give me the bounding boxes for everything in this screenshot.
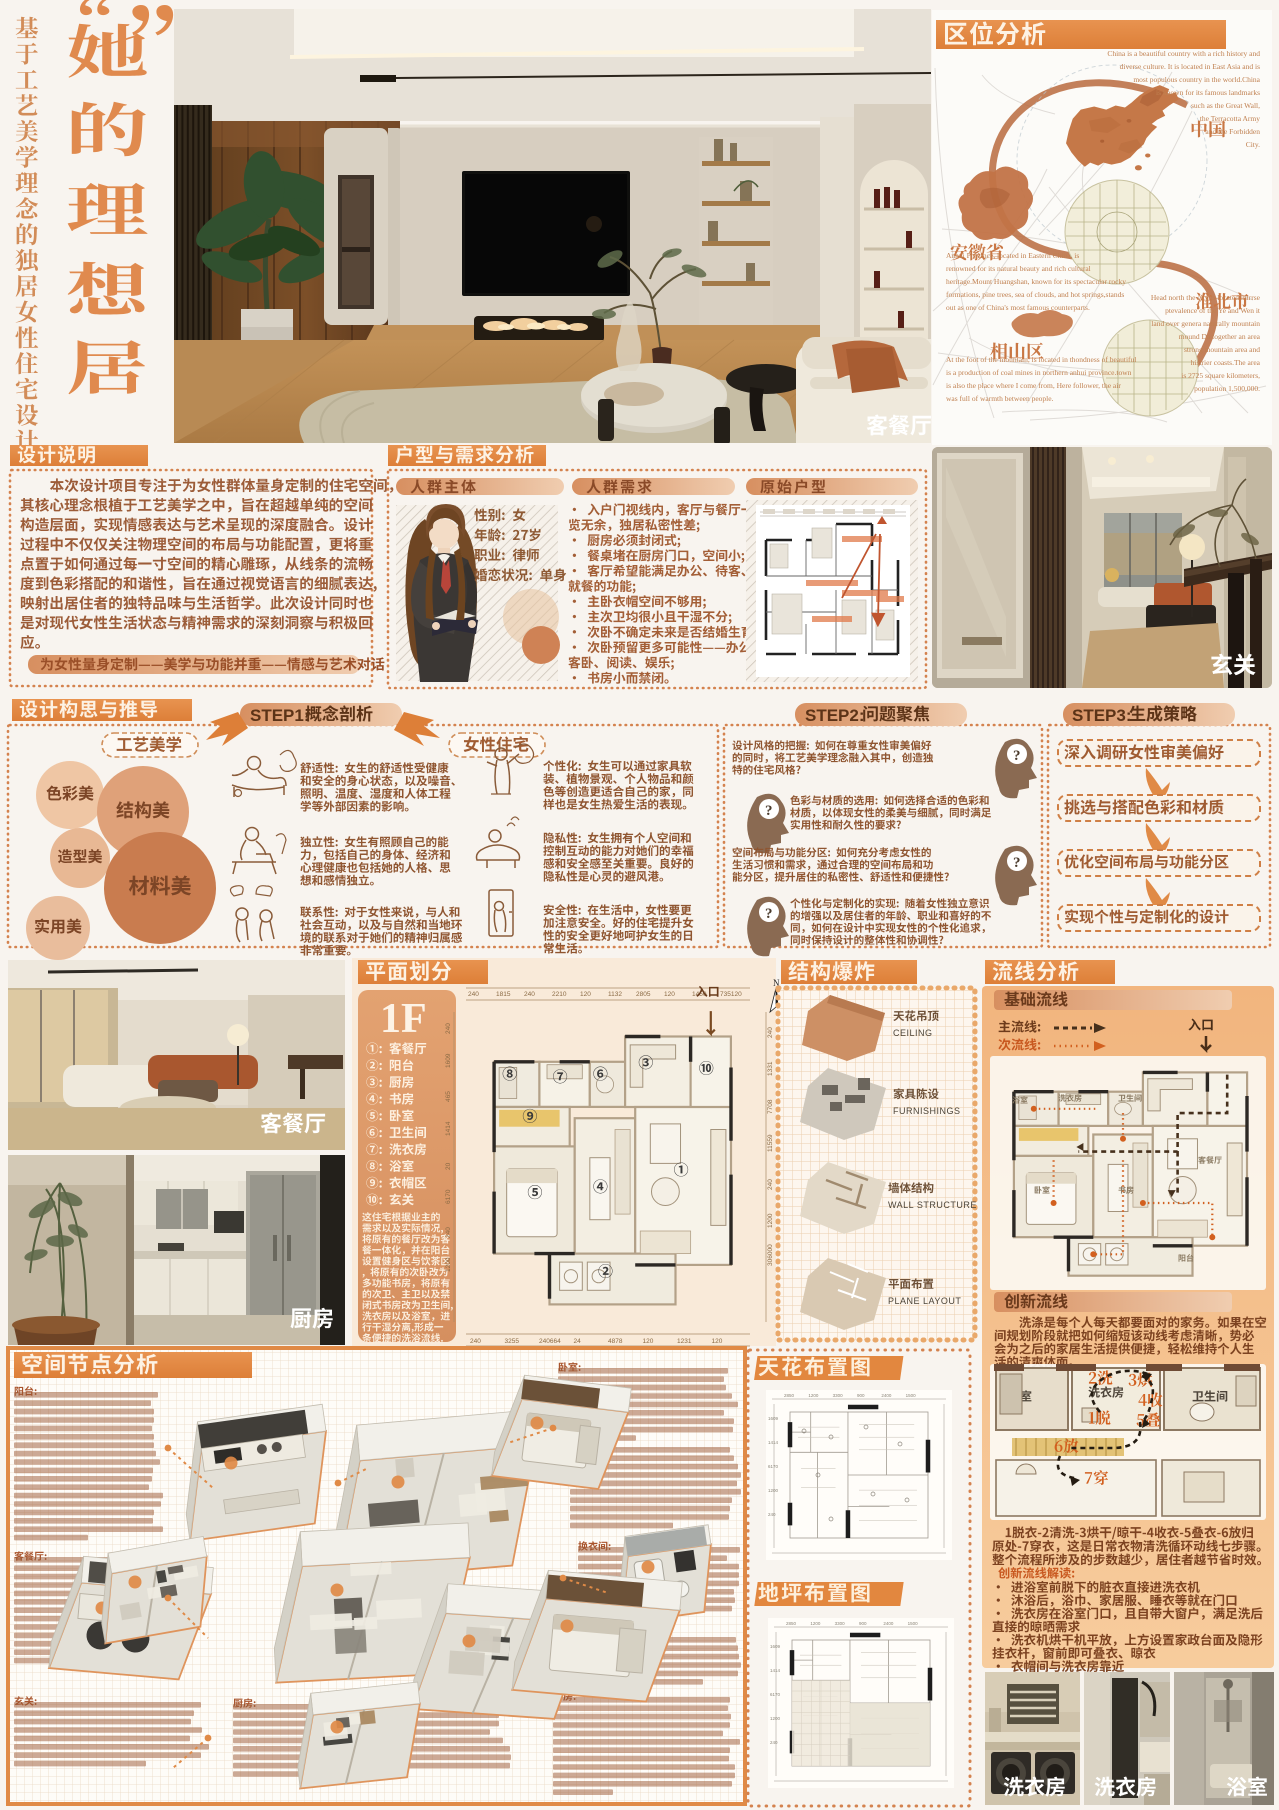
svg-text:?: ?: [765, 803, 773, 819]
svg-text:PLANE LAYOUT: PLANE LAYOUT: [888, 1296, 961, 1306]
svg-text:1200: 1200: [445, 1257, 452, 1272]
svg-text:2850: 2850: [786, 1621, 797, 1626]
svg-text:1500: 1500: [908, 1621, 919, 1626]
svg-text:120: 120: [580, 991, 591, 998]
svg-text:1609: 1609: [768, 1416, 779, 1421]
svg-text:1200: 1200: [770, 1716, 781, 1721]
svg-text:1609: 1609: [445, 1053, 452, 1068]
svg-text:formations, pine trees, sea of: formations, pine trees, sea of clouds, a…: [946, 290, 1124, 299]
svg-text:735120: 735120: [720, 991, 742, 998]
svg-text:is 2725 square kilometers,: is 2725 square kilometers,: [1181, 371, 1260, 380]
svg-text:such as the Great Wall,: such as the Great Wall,: [1191, 101, 1260, 110]
svg-text:900: 900: [859, 1621, 867, 1626]
svg-text:1414: 1414: [768, 1440, 779, 1445]
svg-text:mound Da together an area: mound Da together an area: [1179, 332, 1261, 341]
svg-text:population 1,500,000.: population 1,500,000.: [1194, 384, 1260, 393]
svg-text:City.: City.: [1246, 140, 1260, 149]
svg-text:the Terracotta Army: the Terracotta Army: [1200, 114, 1260, 123]
svg-text:ptevalence of the Ye and Wen i: ptevalence of the Ye and Wen it: [1165, 306, 1261, 315]
svg-text:Anhui Province, located in Eas: Anhui Province, located in Eastern China…: [946, 251, 1079, 260]
svg-text:strong mountain area and: strong mountain area and: [1184, 345, 1260, 354]
svg-text:24: 24: [574, 1338, 582, 1345]
svg-text:1200: 1200: [768, 1488, 779, 1493]
svg-text:240664: 240664: [539, 1338, 561, 1345]
svg-text:2850: 2850: [784, 1393, 795, 1398]
svg-text:900: 900: [857, 1393, 865, 1398]
svg-text:240: 240: [767, 1027, 774, 1038]
svg-text:most populous country in the w: most populous country in the world.China: [1133, 75, 1260, 84]
svg-text:1231: 1231: [677, 1338, 692, 1345]
svg-text:diverse culture. It is located: diverse culture. It is located in East A…: [1120, 62, 1260, 71]
svg-text:6170: 6170: [445, 1189, 452, 1204]
svg-text:20: 20: [445, 1162, 452, 1170]
svg-text:2400: 2400: [881, 1393, 892, 1398]
svg-text:?: ?: [1013, 748, 1021, 764]
svg-text:1414: 1414: [445, 1121, 452, 1136]
svg-text:1331: 1331: [767, 1061, 774, 1076]
svg-text:120: 120: [643, 1338, 654, 1345]
svg-text:1F: 1F: [380, 996, 427, 1042]
svg-text:is a production of coal mines: is a production of coal mines in norther…: [946, 368, 1132, 377]
svg-text:histrier coasts.The area: histrier coasts.The area: [1191, 358, 1261, 367]
svg-text:2210: 2210: [552, 991, 567, 998]
svg-text:is known for its famous landma: is known for its famous landmarks: [1156, 88, 1260, 97]
svg-text:6170: 6170: [770, 1692, 781, 1697]
svg-text:240: 240: [470, 1338, 481, 1345]
svg-text:1609: 1609: [770, 1644, 781, 1649]
svg-text:1132: 1132: [608, 991, 622, 998]
svg-text:1500: 1500: [906, 1393, 917, 1398]
svg-text:3300: 3300: [833, 1393, 844, 1398]
svg-text:out as one of China's most fam: out as one of China's most famous counte…: [946, 303, 1090, 312]
svg-text:CEILING: CEILING: [893, 1028, 933, 1038]
svg-text:120: 120: [664, 991, 675, 998]
svg-text:heritage.Mount Huangshan, know: heritage.Mount Huangshan, known for its …: [946, 277, 1126, 286]
svg-text:1200: 1200: [810, 1621, 821, 1626]
svg-text:?: ?: [765, 906, 773, 922]
svg-text:3255: 3255: [505, 1338, 520, 1345]
svg-text:China is a beautiful country w: China is a beautiful country with a rich…: [1107, 49, 1260, 58]
svg-text:is also the place where I come: is also the place where I come from, Her…: [946, 381, 1121, 390]
svg-text:FURNISHINGS: FURNISHINGS: [893, 1106, 961, 1116]
svg-text:4878: 4878: [608, 1338, 623, 1345]
svg-text:Head north the city is located: Head north the city is located intrrse: [1151, 293, 1261, 302]
svg-text:240: 240: [767, 1179, 774, 1190]
svg-text:was full of warmth between peo: was full of warmth between people.: [946, 394, 1054, 403]
svg-text:6170: 6170: [768, 1464, 779, 1469]
svg-text:1815: 1815: [496, 991, 511, 998]
svg-text:465: 465: [445, 1091, 452, 1102]
svg-text:1200: 1200: [767, 1213, 774, 1228]
svg-text:7708: 7708: [767, 1099, 774, 1114]
svg-text:3300: 3300: [835, 1621, 846, 1626]
svg-text:?: ?: [1013, 855, 1021, 871]
svg-text:2400: 2400: [883, 1621, 894, 1626]
svg-text:240: 240: [445, 1023, 452, 1034]
svg-text:STEP2:: STEP2:: [805, 706, 865, 725]
svg-text:STEP1:: STEP1:: [250, 706, 310, 725]
svg-text:STEP3:: STEP3:: [1072, 706, 1132, 725]
svg-text:240: 240: [524, 991, 535, 998]
svg-text:240: 240: [768, 1512, 776, 1517]
svg-text:1414: 1414: [770, 1668, 781, 1673]
svg-text:11559: 11559: [767, 1134, 774, 1152]
svg-text:2805: 2805: [636, 991, 651, 998]
svg-text:and the Forbidden: and the Forbidden: [1205, 127, 1260, 136]
svg-text:240: 240: [468, 991, 479, 998]
svg-text:240: 240: [445, 1227, 452, 1238]
svg-text:renowned for its natural beaut: renowned for its natural beauty and rich…: [946, 264, 1091, 273]
svg-text:WALL STRUCTURE: WALL STRUCTURE: [888, 1200, 977, 1210]
svg-text:land over genera naturally mou: land over genera naturally mountain: [1151, 319, 1260, 328]
svg-text:120: 120: [712, 1338, 723, 1345]
svg-text:1200: 1200: [808, 1393, 819, 1398]
svg-text:306000: 306000: [767, 1244, 774, 1266]
svg-text:At the foot of the mountain, i: At the foot of the mountain, is located …: [946, 355, 1136, 364]
svg-text:240: 240: [770, 1740, 778, 1745]
